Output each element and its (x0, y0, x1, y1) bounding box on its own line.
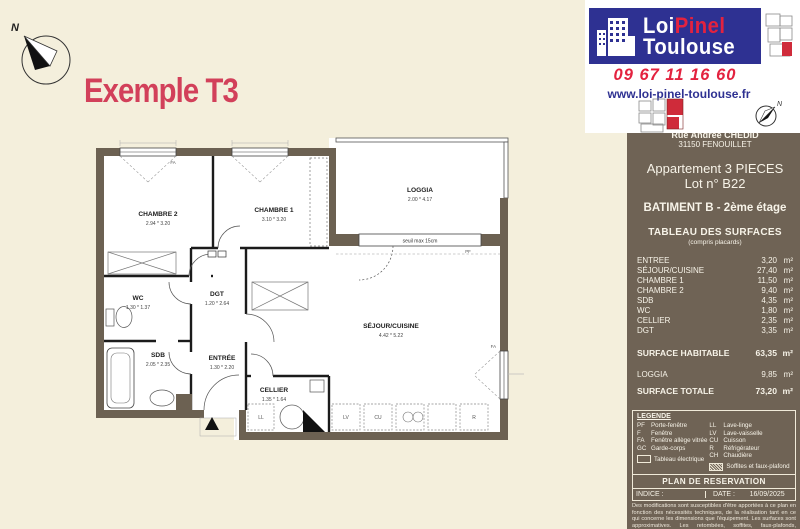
compass-icon: N (8, 18, 82, 92)
row-value: 2,35 (747, 316, 777, 326)
table-row: SÉJOUR/CUISINE27,40m² (637, 266, 793, 276)
row-unit: m² (777, 316, 793, 326)
legend-abbr: R (709, 445, 723, 453)
room-dims-sejour: 4.42 * 5.22 (379, 333, 403, 339)
reservation-plan-page: Rue Andrée CHEDID 31150 FENOUILLET Appar… (0, 0, 800, 529)
row-label: SURFACE HABITABLE (637, 348, 747, 358)
row-label: CHAMBRE 1 (637, 276, 747, 286)
room-label-entree: ENTRÉE (209, 353, 236, 362)
legend-abbr: PF (637, 422, 651, 430)
legend-abbr: LL (709, 422, 723, 430)
row-value: 63,35 (747, 348, 777, 358)
legend-item: CHChaudière (709, 452, 791, 460)
mini-siteplan (637, 97, 699, 133)
legend-soffits: Soffites et faux-plafond (709, 463, 791, 471)
building-icon (595, 14, 637, 58)
legend-item: GCGarde-corps (637, 445, 709, 453)
legend-electrical: Tableau électrique (637, 455, 709, 463)
row-unit: m² (777, 326, 793, 336)
room-label-wc: WC (133, 295, 144, 302)
table-row: ENTREE3,20m² (637, 256, 793, 266)
room-label-chambre1: CHAMBRE 1 (254, 207, 294, 214)
room-label-sejour: SÉJOUR/CUISINE (363, 321, 419, 330)
legend-right-column: LLLave-linge LVLave-vaisselle CUCuisson … (709, 422, 791, 471)
row-label: DGT (637, 326, 747, 336)
phone-number: 09 67 11 16 60 (585, 66, 765, 85)
row-value: 3,35 (747, 326, 777, 336)
sidebar-compass-icon: N (751, 96, 787, 132)
legend-abbr: CU (709, 437, 723, 445)
row-value: 3,20 (747, 256, 777, 266)
room-dims-entree: 1.30 * 2.20 (210, 365, 234, 371)
row-unit: m² (777, 306, 793, 316)
surfaces-table: ENTREE3,20m² SÉJOUR/CUISINE27,40m² CHAMB… (637, 256, 793, 396)
indice-label: INDICE : (636, 491, 706, 498)
lave-linge-label: LL (258, 415, 264, 421)
loggia-threshold: seuil max 15cm (359, 234, 481, 246)
row-unit: m² (777, 286, 793, 296)
legend-abbr: GC (637, 445, 651, 453)
refrigerateur-label: R (472, 415, 476, 421)
brand-name: LoiPinel Toulouse (643, 15, 735, 57)
table-row: CHAMBRE 111,50m² (637, 276, 793, 286)
table-row: SDB4,35m² (637, 296, 793, 306)
date-label: DATE : (713, 491, 735, 498)
page-title: Exemple T3 (84, 72, 238, 111)
row-value: 9,85 (747, 370, 777, 380)
room-dims-cellier: 1.35 * 1.64 (262, 397, 286, 403)
legend-item: FFenêtre (637, 430, 709, 438)
row-value: 27,40 (747, 266, 777, 276)
row-unit: m² (777, 266, 793, 276)
pf-label: PF (465, 249, 471, 254)
disclaimer-text: Des modifications sont susceptibles d'êt… (632, 503, 796, 529)
legend-item: FAFenêtre allège vitrée (637, 437, 709, 445)
loggia-row: LOGGIA9,85m² (637, 370, 793, 380)
apartment-type: Appartement 3 PIECES (637, 161, 793, 176)
row-unit: m² (777, 348, 793, 358)
reservation-plan-bar: PLAN DE RESERVATION (632, 475, 796, 489)
room-label-cellier: CELLIER (260, 387, 288, 394)
legend-abbr: FA (637, 437, 651, 445)
row-unit: m² (777, 296, 793, 306)
room-dims-loggia: 2.00 * 4.17 (408, 197, 432, 203)
soffit-icon (709, 463, 723, 471)
table-row: CELLIER2,35m² (637, 316, 793, 326)
room-dims-chambre2: 2.94 * 3.20 (146, 221, 170, 227)
row-unit: m² (777, 276, 793, 286)
row-label: LOGGIA (637, 370, 747, 380)
legend-label: Fenêtre allège vitrée (651, 437, 709, 445)
row-label: SURFACE TOTALE (637, 386, 747, 396)
row-value: 73,20 (747, 386, 777, 396)
legend-box: LEGENDE PFPorte-fenêtre FFenêtre FAFenêt… (632, 410, 796, 475)
seuil-label: seuil max 15cm (403, 239, 438, 245)
row-label: CELLIER (637, 316, 747, 326)
mini-siteplan-fragment (764, 12, 798, 62)
legend-item: CUCuisson (709, 437, 791, 445)
row-label: WC (637, 306, 747, 316)
row-value: 1,80 (747, 306, 777, 316)
row-label: SDB (637, 296, 747, 306)
legend-item: LLLave-linge (709, 422, 791, 430)
brand-name-toulouse: Toulouse (643, 36, 735, 57)
legend-left-column: PFPorte-fenêtre FFenêtre FAFenêtre allèg… (637, 422, 709, 471)
surface-totale-row: SURFACE TOTALE73,20m² (637, 386, 793, 396)
room-dims-chambre1: 3.10 * 3.20 (262, 217, 286, 223)
row-unit: m² (777, 256, 793, 266)
legend-abbr: LV (709, 430, 723, 438)
table-row: CHAMBRE 29,40m² (637, 286, 793, 296)
legend-label: Réfrigérateur (723, 445, 791, 453)
legend-label: Cuisson (723, 437, 791, 445)
table-row: DGT3,35m² (637, 326, 793, 336)
room-label-loggia: LOGGIA (407, 187, 433, 194)
room-label-chambre2: CHAMBRE 2 (138, 211, 178, 218)
fa-label: FA (170, 160, 175, 165)
legend-label: Tableau électrique (654, 456, 704, 464)
row-unit: m² (777, 370, 793, 380)
room-dims-wc: 1.30 * 1.37 (126, 305, 150, 311)
electrical-panel-icon (637, 455, 651, 463)
legend-label: Chaudière (723, 452, 791, 460)
brand-header-card: LoiPinel Toulouse 09 67 11 16 60 www.loi… (585, 0, 800, 133)
room-label-sdb: SDB (151, 352, 165, 359)
indice-date-row: INDICE : DATE :16/09/2025 (632, 489, 796, 501)
table-row: WC1,80m² (637, 306, 793, 316)
row-unit: m² (777, 386, 793, 396)
row-label: ENTREE (637, 256, 747, 266)
room-label-dgt: DGT (210, 291, 224, 298)
legend-item: PFPorte-fenêtre (637, 422, 709, 430)
dimension-ticks (120, 140, 288, 146)
room-dims-dgt: 1.20 * 2.64 (205, 301, 229, 307)
legend-label: Garde-corps (651, 445, 709, 453)
legend-label: Porte-fenêtre (651, 422, 709, 430)
legend-item: LVLave-vaisselle (709, 430, 791, 438)
legend-label: Lave-linge (723, 422, 791, 430)
room-dims-sdb: 2.05 * 2.35 (146, 362, 170, 368)
building-floor: BATIMENT B - 2ème étage (637, 202, 793, 214)
legend-label: Fenêtre (651, 430, 709, 438)
date-value: 16/09/2025 (750, 491, 785, 498)
surfaces-table-title: TABLEAU DES SURFACES (637, 227, 793, 238)
legend-item: RRéfrigérateur (709, 445, 791, 453)
fa-label: FA (491, 344, 496, 349)
sidebar-footer: LEGENDE PFPorte-fenêtre FFenêtre FAFenêt… (632, 410, 796, 529)
legend-label: Lave-vaisselle (723, 430, 791, 438)
row-value: 11,50 (747, 276, 777, 286)
sidebar-content: Rue Andrée CHEDID 31150 FENOUILLET Appar… (637, 130, 793, 396)
brand-logo: LoiPinel Toulouse (589, 8, 761, 64)
floor-plan: seuil max 15cm (96, 136, 524, 456)
north-label: N (11, 22, 20, 34)
row-label: CHAMBRE 2 (637, 286, 747, 296)
legend-title: LEGENDE (637, 413, 791, 420)
lot-number: Lot n° B22 (637, 176, 793, 191)
row-label: SÉJOUR/CUISINE (637, 266, 747, 276)
surfaces-table-subtitle: (compris placards) (637, 239, 793, 246)
lave-vaisselle-label: LV (343, 415, 349, 421)
legend-abbr: F (637, 430, 651, 438)
cuisson-label: CU (374, 415, 382, 421)
north-label: N (777, 101, 783, 108)
legend-label: Soffites et faux-plafond (726, 463, 789, 471)
address-line2: 31150 FENOUILLET (637, 140, 793, 149)
row-value: 4,35 (747, 296, 777, 306)
surface-habitable-row: SURFACE HABITABLE63,35m² (637, 348, 793, 358)
legend-abbr: CH (709, 452, 723, 460)
row-value: 9,40 (747, 286, 777, 296)
